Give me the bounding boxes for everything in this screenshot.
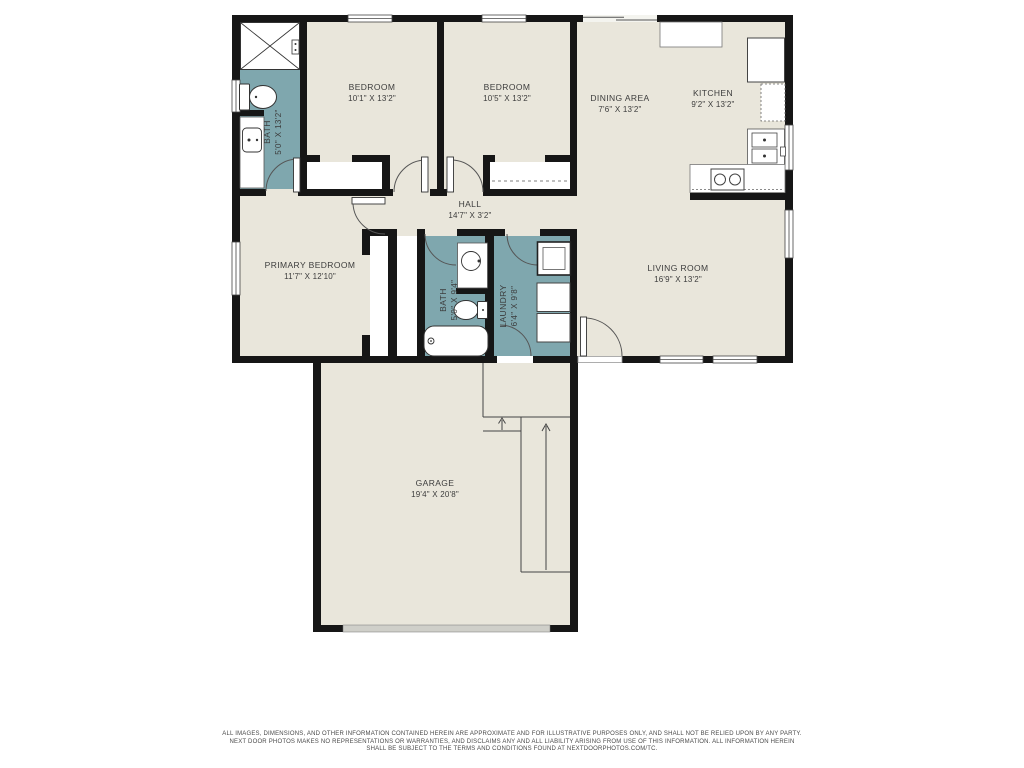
garage-walkway bbox=[483, 363, 570, 572]
shower-fixture bbox=[241, 23, 300, 70]
floor-plan-page: BEDROOM10'1" X 13'2" BEDROOM10'5" X 13'2… bbox=[0, 0, 1024, 768]
label-hall: HALL14'7" X 3'2" bbox=[410, 199, 530, 221]
label-primary-bedroom: PRIMARY BEDROOM11'7" X 12'10" bbox=[245, 260, 375, 282]
toilet-fixture bbox=[240, 84, 277, 110]
label-bedroom1: BEDROOM10'1" X 13'2" bbox=[307, 82, 437, 104]
fixtures-overlay bbox=[0, 0, 1024, 768]
label-kitchen: KITCHEN9'2" X 13'2" bbox=[655, 88, 771, 110]
vanity-sink-fixture bbox=[458, 243, 488, 288]
disclaimer-text: ALL IMAGES, DIMENSIONS, AND OTHER INFORM… bbox=[0, 731, 1024, 754]
label-garage: GARAGE19'4" X 20'8" bbox=[370, 478, 500, 500]
label-bedroom2: BEDROOM10'5" X 13'2" bbox=[444, 82, 570, 104]
door-threshold bbox=[578, 357, 622, 363]
washer-dryer-fixture bbox=[537, 283, 570, 342]
vanity-sink-fixture bbox=[240, 117, 264, 188]
bathtub-fixture bbox=[424, 326, 488, 356]
label-living-room: LIVING ROOM16'9" X 13'2" bbox=[608, 263, 748, 285]
garage-door bbox=[343, 625, 550, 632]
sliding-door bbox=[583, 15, 657, 22]
utility-sink-fixture bbox=[538, 242, 571, 275]
